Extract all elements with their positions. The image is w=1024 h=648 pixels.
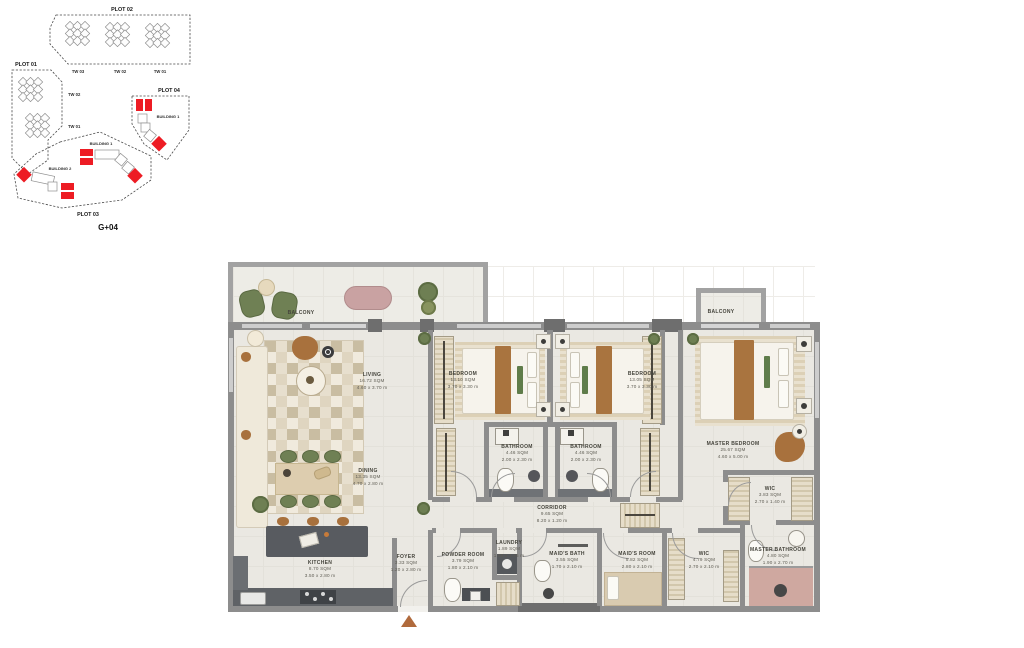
kitchen-stool <box>337 517 349 526</box>
sink <box>566 470 578 482</box>
bed-throw <box>517 366 523 394</box>
dining-chair <box>302 495 319 508</box>
bed-throw <box>764 356 770 388</box>
shower-head <box>568 430 574 436</box>
balcony-lounger <box>344 286 392 310</box>
dining-chair <box>302 450 319 463</box>
door-gap <box>492 497 514 502</box>
toilet <box>444 578 461 602</box>
island-decor <box>324 532 329 537</box>
corridor-closet <box>620 503 660 528</box>
door-gap <box>450 497 476 502</box>
balcony-door <box>310 324 366 328</box>
kitchen-stool <box>277 517 289 526</box>
shower-head <box>503 430 509 436</box>
room-label-master-bedroom: MASTER BEDROOM 25.67 SQM 4.60 x 5.00 m <box>691 441 775 460</box>
drain <box>543 588 554 599</box>
laundry-shaft <box>496 582 520 606</box>
nightstand <box>555 334 570 349</box>
room-label-master-balcony: BALCONY <box>686 309 756 315</box>
window <box>242 324 302 328</box>
sofa-pillow <box>241 430 251 440</box>
door-gap <box>494 528 516 533</box>
dining-chair <box>324 450 341 463</box>
nightstand <box>792 424 807 439</box>
door-gap <box>630 497 656 502</box>
wall <box>723 470 814 475</box>
nightstand <box>536 334 551 349</box>
kitchen-tall-unit <box>233 556 248 590</box>
wall <box>228 262 233 326</box>
armchair <box>292 336 318 360</box>
room-label-maids-room: MAID'S ROOM 5.82 SQM 2.80 x 2.10 m <box>601 551 673 570</box>
small-table <box>322 346 334 358</box>
kitchen-sink <box>240 592 266 605</box>
wall <box>432 528 667 533</box>
balcony-plant <box>418 282 438 302</box>
table-decor <box>283 469 291 477</box>
wall <box>696 288 701 324</box>
entrance-marker-icon <box>401 615 417 627</box>
window <box>770 324 810 328</box>
wall <box>428 330 433 500</box>
washer-door <box>502 559 512 569</box>
coffee-table-center <box>306 376 314 384</box>
pillow <box>527 352 537 378</box>
pillow <box>607 576 619 600</box>
pillow <box>778 380 789 408</box>
window <box>229 338 233 392</box>
living-plant <box>252 496 269 513</box>
sink <box>788 530 805 547</box>
bed-runner <box>734 340 754 420</box>
wall <box>696 288 766 293</box>
stove-burner <box>329 597 333 601</box>
door-gap <box>588 497 610 502</box>
stove-burner <box>321 592 325 596</box>
balcony-door <box>701 324 759 328</box>
room-label-bedroom-1: BEDROOM 13.10 SQM 3.70 x 3.30 m <box>425 371 501 390</box>
master-balcony-floor <box>700 292 762 324</box>
room-label-kitchen: KITCHEN 8.70 SQM 3.50 x 2.80 m <box>285 560 355 579</box>
pillow <box>778 348 789 376</box>
room-label-corridor: CORRIDOR 9.65 SQM 8.20 x 1.20 m <box>517 505 587 524</box>
room-label-maids-bath: MAID'S BATH 3.55 SQM 1.70 x 2.10 m <box>531 551 603 570</box>
nightstand <box>796 336 812 352</box>
side-table <box>247 330 264 347</box>
sofa-pillow <box>241 352 251 362</box>
wall <box>543 425 548 502</box>
shower-glass <box>749 566 813 568</box>
wall <box>678 330 683 500</box>
window <box>567 324 649 328</box>
stove-burner <box>313 597 317 601</box>
hall-plant <box>418 332 431 345</box>
pillow <box>570 382 580 408</box>
bed-throw <box>582 366 588 394</box>
wall <box>761 288 766 324</box>
room-label-bathroom-2: BATHROOM 4.46 SQM 2.00 x 2.30 m <box>553 444 619 463</box>
sink <box>528 470 540 482</box>
drain <box>774 584 787 597</box>
nightstand <box>796 398 812 414</box>
master-plant <box>687 333 699 345</box>
apartment-floor-plan: BALCONY LIVING 16.72 SQM 4.60 x 3.70 m D… <box>0 0 1024 648</box>
nightstand <box>555 402 570 417</box>
pillow <box>570 352 580 378</box>
nightstand <box>536 402 551 417</box>
wall <box>612 425 617 502</box>
wall-column <box>368 319 382 332</box>
hall-plant <box>417 502 430 515</box>
shower-bar <box>558 544 588 547</box>
room-label-dining: DINING 13.35 SQM 4.70 x 2.80 m <box>333 468 403 487</box>
floor-plan-page: PLOT 02 TW 03 TW 02 TW 01 PLOT 01 TW 02 … <box>0 0 1024 648</box>
wall <box>484 422 617 427</box>
dining-chair <box>324 495 341 508</box>
bedroom-plant <box>648 333 660 345</box>
wall-column <box>518 603 600 612</box>
wall <box>483 262 488 326</box>
room-label-master-bathroom: MASTER BATHROOM 4.80 SQM 1.90 x 2.70 m <box>736 547 820 566</box>
kitchen-stool <box>307 517 319 526</box>
room-label-wic-2: WIC 4.79 SQM 2.70 x 2.10 m <box>669 551 739 570</box>
wall <box>228 262 488 267</box>
room-label-bathroom-1: BATHROOM 4.46 SQM 2.00 x 2.30 m <box>484 444 550 463</box>
room-label-master-wic: WIC 3.83 SQM 2.70 x 1.40 m <box>735 486 805 505</box>
dining-chair <box>280 495 297 508</box>
room-label-bedroom-2: BEDROOM 13.05 SQM 3.70 x 3.30 m <box>604 371 680 390</box>
dining-chair <box>280 450 297 463</box>
window <box>815 342 819 418</box>
room-label-living: LIVING 16.72 SQM 4.60 x 3.70 m <box>337 372 407 391</box>
sink <box>470 591 481 601</box>
balcony-plant-pot <box>421 300 436 315</box>
stove-burner <box>305 592 309 596</box>
window <box>457 324 541 328</box>
balcony-table <box>258 279 275 296</box>
room-label-balcony: BALCONY <box>265 310 337 316</box>
